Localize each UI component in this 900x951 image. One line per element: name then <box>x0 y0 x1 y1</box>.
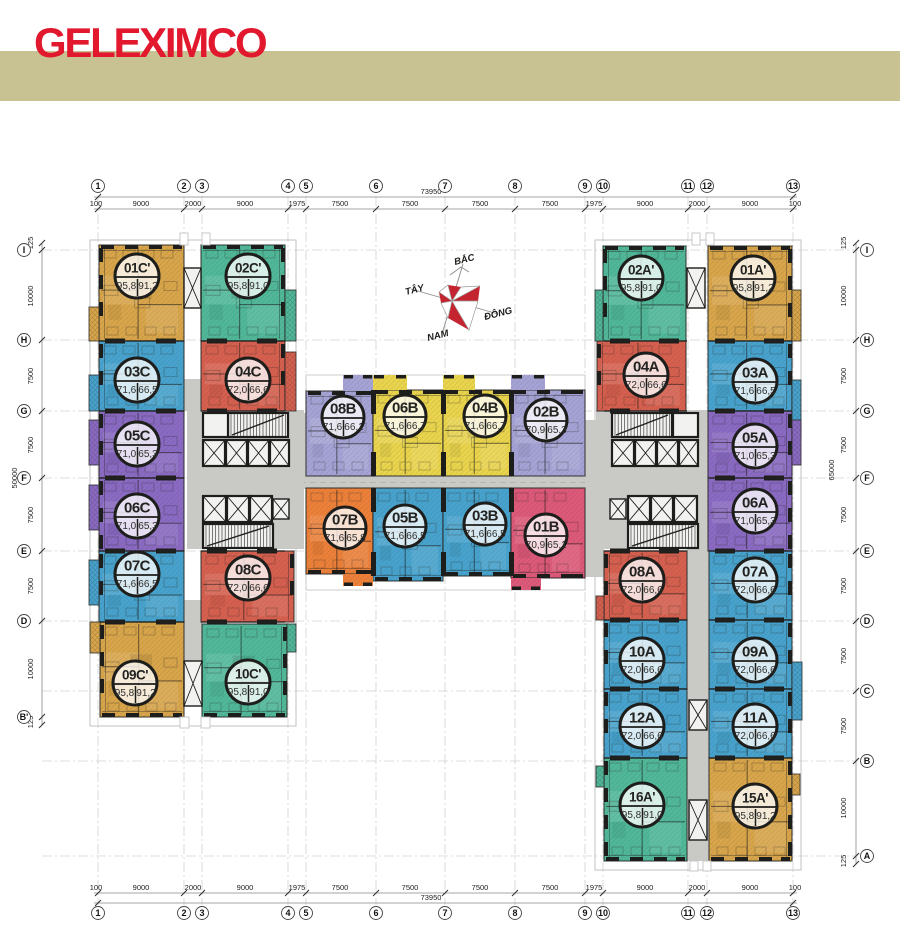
svg-text:71,6: 71,6 <box>323 422 343 433</box>
svg-text:10: 10 <box>598 181 608 191</box>
svg-text:05C: 05C <box>124 428 151 445</box>
svg-text:91,0: 91,0 <box>642 283 662 294</box>
svg-text:70,9: 70,9 <box>526 540 546 551</box>
svg-text:9000: 9000 <box>133 199 150 208</box>
svg-text:04B: 04B <box>472 400 499 417</box>
svg-text:7500: 7500 <box>542 199 559 208</box>
svg-text:66,6: 66,6 <box>249 583 269 594</box>
svg-text:7: 7 <box>442 908 447 918</box>
svg-text:2: 2 <box>181 908 186 918</box>
svg-text:6: 6 <box>373 181 378 191</box>
svg-text:F: F <box>864 473 870 483</box>
svg-text:03B: 03B <box>472 508 499 525</box>
svg-text:02C': 02C' <box>235 261 261 276</box>
svg-text:4: 4 <box>285 908 290 918</box>
svg-text:12: 12 <box>702 908 712 918</box>
svg-text:04C: 04C <box>235 364 262 381</box>
svg-text:71,0: 71,0 <box>117 521 137 532</box>
svg-text:65,3: 65,3 <box>756 516 776 527</box>
svg-text:7500: 7500 <box>839 507 848 524</box>
svg-text:B': B' <box>20 712 29 722</box>
svg-text:05A: 05A <box>742 430 769 447</box>
svg-text:09A: 09A <box>742 644 769 661</box>
svg-text:6: 6 <box>373 908 378 918</box>
svg-text:I: I <box>866 245 869 255</box>
svg-text:B: B <box>864 756 871 766</box>
svg-text:G: G <box>863 406 870 416</box>
svg-text:09C': 09C' <box>122 668 148 683</box>
svg-text:5: 5 <box>303 181 308 191</box>
svg-text:71,6: 71,6 <box>735 386 755 397</box>
svg-text:10000: 10000 <box>839 286 848 307</box>
svg-text:7500: 7500 <box>26 578 35 595</box>
svg-text:95,8: 95,8 <box>733 283 753 294</box>
svg-text:70,9: 70,9 <box>526 425 546 436</box>
svg-text:11A: 11A <box>742 710 768 727</box>
svg-text:01C': 01C' <box>124 261 150 276</box>
svg-text:91,0: 91,0 <box>643 810 663 821</box>
svg-text:65,3: 65,3 <box>547 425 567 436</box>
svg-text:7500: 7500 <box>332 199 349 208</box>
svg-text:66,5: 66,5 <box>138 579 158 590</box>
svg-text:12A: 12A <box>629 710 656 727</box>
svg-text:10A: 10A <box>629 644 656 661</box>
svg-text:95,8: 95,8 <box>115 688 135 699</box>
svg-text:91,2: 91,2 <box>136 688 156 699</box>
svg-text:73950: 73950 <box>421 187 442 196</box>
svg-text:66,6: 66,6 <box>756 585 776 596</box>
svg-text:91,2: 91,2 <box>138 281 158 292</box>
svg-text:66,6: 66,6 <box>249 385 269 396</box>
svg-text:71,0: 71,0 <box>735 516 755 527</box>
svg-text:91,0: 91,0 <box>249 281 269 292</box>
svg-text:7500: 7500 <box>26 507 35 524</box>
svg-text:07C: 07C <box>124 558 151 575</box>
svg-text:66,6: 66,6 <box>647 380 667 391</box>
svg-text:95,8: 95,8 <box>117 281 137 292</box>
svg-text:95,8: 95,8 <box>622 810 642 821</box>
svg-text:91,2: 91,2 <box>754 283 774 294</box>
svg-text:ĐÔNG: ĐÔNG <box>483 304 514 323</box>
svg-text:7500: 7500 <box>542 883 559 892</box>
svg-text:C: C <box>864 686 871 696</box>
svg-text:3: 3 <box>199 908 204 918</box>
svg-text:95,8: 95,8 <box>228 281 248 292</box>
svg-text:71,6: 71,6 <box>117 579 137 590</box>
svg-text:1: 1 <box>95 908 100 918</box>
svg-text:08B: 08B <box>330 401 357 418</box>
svg-text:07A: 07A <box>742 564 769 581</box>
svg-text:72,0: 72,0 <box>622 731 642 742</box>
svg-text:2000: 2000 <box>689 199 706 208</box>
svg-text:9000: 9000 <box>637 199 654 208</box>
svg-text:4: 4 <box>285 181 290 191</box>
svg-text:1975: 1975 <box>289 199 306 208</box>
svg-text:7500: 7500 <box>472 883 489 892</box>
svg-text:1: 1 <box>95 181 100 191</box>
svg-text:95,8: 95,8 <box>735 811 755 822</box>
svg-text:9000: 9000 <box>742 883 759 892</box>
svg-text:66,6: 66,6 <box>756 731 776 742</box>
svg-text:15A': 15A' <box>742 791 768 806</box>
svg-text:F: F <box>21 473 27 483</box>
svg-text:11: 11 <box>683 181 693 191</box>
svg-text:72,0: 72,0 <box>622 585 642 596</box>
svg-text:100: 100 <box>90 199 103 208</box>
svg-text:2: 2 <box>181 181 186 191</box>
svg-text:66,5: 66,5 <box>406 531 426 542</box>
svg-text:2000: 2000 <box>185 199 202 208</box>
svg-text:06C: 06C <box>124 500 151 517</box>
svg-text:7500: 7500 <box>839 648 848 665</box>
svg-text:8: 8 <box>512 181 517 191</box>
svg-text:100: 100 <box>789 199 802 208</box>
svg-text:01A': 01A' <box>740 263 766 278</box>
svg-text:125: 125 <box>839 237 848 250</box>
svg-text:03C: 03C <box>124 364 151 381</box>
svg-text:7: 7 <box>442 181 447 191</box>
svg-text:65,3: 65,3 <box>138 521 158 532</box>
svg-text:125: 125 <box>839 855 848 868</box>
svg-text:73950: 73950 <box>421 893 442 902</box>
svg-text:91,0: 91,0 <box>249 687 269 698</box>
svg-text:E: E <box>864 546 870 556</box>
svg-text:66,7: 66,7 <box>406 421 426 432</box>
svg-text:71,6: 71,6 <box>325 533 345 544</box>
svg-text:66,6: 66,6 <box>756 665 776 676</box>
svg-text:9000: 9000 <box>237 199 254 208</box>
svg-text:2000: 2000 <box>185 883 202 892</box>
svg-text:71,6: 71,6 <box>465 529 485 540</box>
svg-text:72,0: 72,0 <box>735 665 755 676</box>
svg-text:D: D <box>21 616 28 626</box>
svg-text:7500: 7500 <box>839 718 848 735</box>
svg-text:7500: 7500 <box>26 437 35 454</box>
svg-text:100: 100 <box>90 883 103 892</box>
svg-text:95,8: 95,8 <box>228 687 248 698</box>
svg-text:95,8: 95,8 <box>621 283 641 294</box>
svg-text:66,1: 66,1 <box>344 422 364 433</box>
svg-text:1975: 1975 <box>586 883 603 892</box>
svg-text:A: A <box>864 851 871 861</box>
svg-text:10000: 10000 <box>26 659 35 680</box>
svg-text:9: 9 <box>582 181 587 191</box>
svg-text:10000: 10000 <box>839 798 848 819</box>
svg-text:1975: 1975 <box>586 199 603 208</box>
svg-text:72,0: 72,0 <box>228 583 248 594</box>
svg-text:10C': 10C' <box>235 667 261 682</box>
svg-text:16A': 16A' <box>629 790 655 805</box>
svg-text:66,7: 66,7 <box>486 421 506 432</box>
svg-text:01B: 01B <box>533 519 560 536</box>
svg-text:1975: 1975 <box>289 883 306 892</box>
svg-text:71,6: 71,6 <box>385 421 405 432</box>
svg-text:66,5: 66,5 <box>486 529 506 540</box>
svg-text:66,5: 66,5 <box>138 385 158 396</box>
svg-text:72,0: 72,0 <box>622 665 642 676</box>
svg-text:7500: 7500 <box>839 437 848 454</box>
svg-text:65000: 65000 <box>827 460 836 481</box>
svg-text:08A: 08A <box>629 564 656 581</box>
svg-text:H: H <box>21 335 28 345</box>
svg-text:12: 12 <box>702 181 712 191</box>
svg-text:71,0: 71,0 <box>117 449 137 460</box>
svg-text:71,6: 71,6 <box>385 531 405 542</box>
svg-text:65,3: 65,3 <box>138 449 158 460</box>
svg-text:TÂY: TÂY <box>404 281 427 298</box>
svg-text:G: G <box>20 406 27 416</box>
svg-text:11: 11 <box>683 908 693 918</box>
svg-text:07B: 07B <box>332 512 359 529</box>
svg-text:13: 13 <box>788 908 798 918</box>
svg-text:08C: 08C <box>235 562 262 579</box>
svg-text:7500: 7500 <box>26 368 35 385</box>
svg-text:9000: 9000 <box>133 883 150 892</box>
svg-text:02A': 02A' <box>628 263 654 278</box>
svg-text:02B: 02B <box>533 404 560 421</box>
svg-text:9000: 9000 <box>637 883 654 892</box>
svg-text:9: 9 <box>582 908 587 918</box>
svg-text:NAM: NAM <box>426 328 451 344</box>
svg-text:10000: 10000 <box>26 286 35 307</box>
svg-text:7500: 7500 <box>332 883 349 892</box>
svg-text:BẮC: BẮC <box>453 252 476 268</box>
svg-text:66,6: 66,6 <box>643 585 663 596</box>
svg-text:7500: 7500 <box>402 199 419 208</box>
svg-text:72,0: 72,0 <box>228 385 248 396</box>
svg-text:13: 13 <box>788 181 798 191</box>
svg-text:7500: 7500 <box>472 199 489 208</box>
svg-text:71,6: 71,6 <box>117 385 137 396</box>
svg-text:72,0: 72,0 <box>735 731 755 742</box>
svg-text:04A: 04A <box>633 359 660 376</box>
svg-text:91,2: 91,2 <box>756 811 776 822</box>
svg-text:65,1: 65,1 <box>547 540 567 551</box>
svg-text:71,6: 71,6 <box>465 421 485 432</box>
svg-text:66,5: 66,5 <box>756 386 776 397</box>
svg-text:7500: 7500 <box>839 578 848 595</box>
svg-text:03A: 03A <box>742 365 769 382</box>
svg-text:9000: 9000 <box>237 883 254 892</box>
svg-text:66,6: 66,6 <box>643 665 663 676</box>
svg-text:D: D <box>864 616 871 626</box>
svg-text:5: 5 <box>303 908 308 918</box>
svg-text:H: H <box>864 335 871 345</box>
svg-text:66,6: 66,6 <box>643 731 663 742</box>
svg-text:I: I <box>23 245 26 255</box>
svg-text:3: 3 <box>199 181 204 191</box>
svg-text:7500: 7500 <box>839 368 848 385</box>
svg-text:06B: 06B <box>392 400 419 417</box>
svg-text:05B: 05B <box>392 510 419 527</box>
svg-text:72,0: 72,0 <box>626 380 646 391</box>
svg-text:7500: 7500 <box>402 883 419 892</box>
svg-text:10: 10 <box>598 908 608 918</box>
svg-text:100: 100 <box>789 883 802 892</box>
svg-text:72,0: 72,0 <box>735 585 755 596</box>
svg-text:71,0: 71,0 <box>735 451 755 462</box>
svg-text:8: 8 <box>512 908 517 918</box>
svg-text:9000: 9000 <box>742 199 759 208</box>
svg-text:65,3: 65,3 <box>756 451 776 462</box>
svg-text:E: E <box>21 546 27 556</box>
svg-text:2000: 2000 <box>689 883 706 892</box>
svg-text:06A: 06A <box>742 495 769 512</box>
svg-text:65,8: 65,8 <box>346 533 366 544</box>
